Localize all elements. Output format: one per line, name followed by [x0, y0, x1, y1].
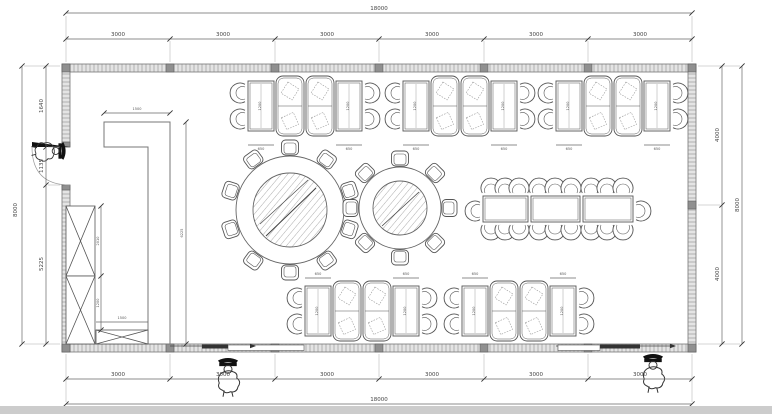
svg-text:1200: 1200: [501, 102, 505, 111]
dim-label: 1500: [118, 316, 127, 320]
dim-label: 6225: [180, 229, 184, 238]
svg-text:1200: 1200: [560, 307, 564, 316]
dimension-top: 18000 3000 3000 3000 3000 3000 3000: [63, 6, 694, 42]
dimension-bottom: 3000 3000 3000 3000 3000 3000 18000: [63, 372, 694, 407]
table-top: [253, 173, 327, 247]
dim-label: 1135: [39, 159, 45, 173]
banquet-tables: [483, 196, 633, 222]
booth-seating-bottom: [287, 281, 594, 341]
svg-text:650: 650: [560, 272, 567, 276]
svg-text:1200: 1200: [472, 307, 476, 316]
dim-label: 18000: [370, 6, 388, 12]
svg-text:1200: 1200: [413, 102, 417, 111]
dim-label: 8000: [13, 203, 19, 217]
round-table-large: [221, 140, 359, 280]
dim-label: 3000: [529, 32, 543, 38]
dim-label: 1500: [133, 107, 142, 111]
wall-left-upper: [62, 64, 70, 147]
round-table-small: [343, 151, 457, 265]
dim-label: 1640: [39, 99, 45, 113]
svg-text:650: 650: [654, 147, 661, 151]
table-top: [373, 181, 427, 235]
banquet-chairs-top: [481, 178, 633, 193]
dimension-cabinets: 2010 1200 1500: [96, 203, 148, 332]
dim-label: 5225: [39, 257, 45, 271]
dim-label: 4000: [715, 267, 721, 281]
svg-text:650: 650: [258, 147, 265, 151]
dim-label: 3000: [216, 32, 230, 38]
dim-label: 3000: [529, 372, 543, 378]
dim-label: 3000: [425, 32, 439, 38]
dim-label: 18000: [370, 397, 388, 403]
dim-label: 3000: [216, 372, 230, 378]
banquet-end-chair: [465, 201, 480, 221]
dim-label: 3000: [425, 372, 439, 378]
svg-text:650: 650: [315, 272, 322, 276]
svg-text:650: 650: [472, 272, 479, 276]
banquet-end-chair: [636, 201, 651, 221]
dim-label: 3000: [633, 372, 647, 378]
floor-plan-drawing: 18000 3000 3000 3000 3000 3000 3000 3000…: [0, 0, 772, 414]
booth-seating-top: [230, 76, 688, 136]
booth-group: [444, 281, 594, 341]
dim-label: 3000: [320, 32, 334, 38]
booth-group: [538, 76, 688, 136]
dimension-left: 1640 1135 5225 8000: [13, 63, 49, 346]
svg-text:1200: 1200: [566, 102, 570, 111]
svg-text:650: 650: [346, 147, 353, 151]
service-counter: [104, 122, 170, 344]
svg-text:1200: 1200: [258, 102, 262, 111]
svg-text:1200: 1200: [315, 307, 319, 316]
dim-label: 2010: [96, 237, 100, 246]
svg-text:650: 650: [501, 147, 508, 151]
dim-label: 3000: [111, 372, 125, 378]
svg-text:650: 650: [566, 147, 573, 151]
svg-text:650: 650: [413, 147, 420, 151]
svg-text:1200: 1200: [654, 102, 658, 111]
dim-label: 4000: [715, 128, 721, 142]
floor-plan-canvas: 18000 3000 3000 3000 3000 3000 3000 3000…: [0, 0, 772, 414]
banquet-chairs-bottom: [481, 225, 633, 240]
dim-label: 3000: [633, 32, 647, 38]
dim-label: 3000: [111, 32, 125, 38]
svg-text:1200: 1200: [403, 307, 407, 316]
booth-group: [230, 76, 380, 136]
booth-group: [385, 76, 535, 136]
dim-label: 3000: [320, 372, 334, 378]
banquet-table-row: [465, 178, 651, 240]
booth-group: [287, 281, 437, 341]
sliding-door-panel: [600, 345, 640, 349]
sliding-door-panel: [202, 345, 228, 349]
dim-label: 1200: [96, 299, 100, 308]
dim-label: 8000: [735, 198, 741, 212]
svg-text:1200: 1200: [346, 102, 350, 111]
page-bottom-edge: [0, 406, 772, 414]
cabinets: [66, 206, 148, 344]
svg-text:650: 650: [403, 272, 410, 276]
